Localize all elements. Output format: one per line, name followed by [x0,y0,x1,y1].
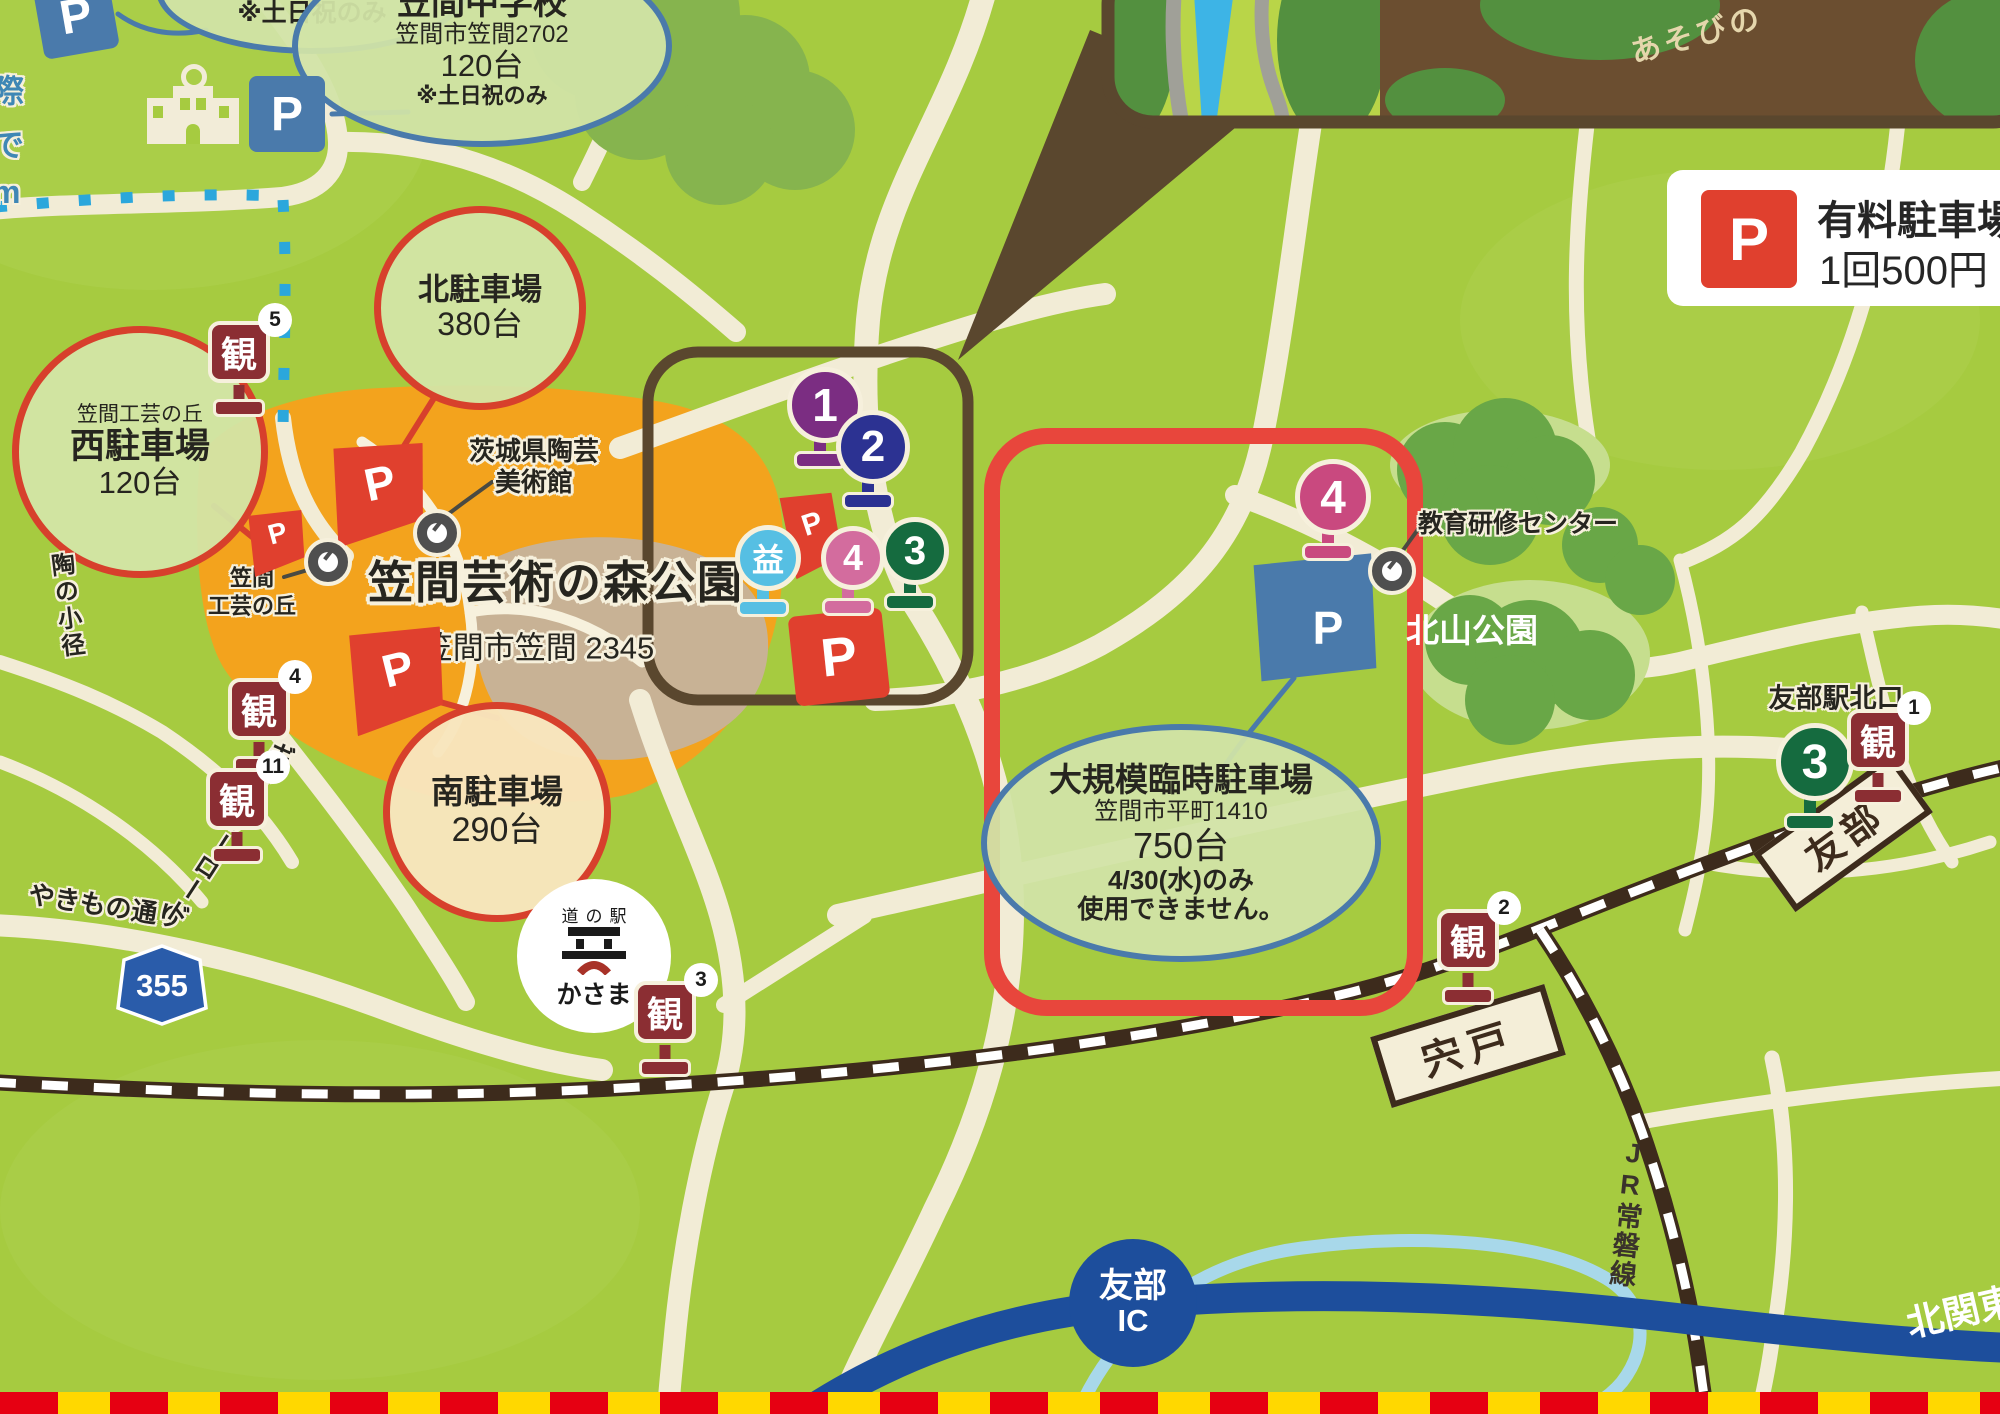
museum-line1: 茨城県陶芸 [469,436,599,467]
junior-high-name: 笠間中学校 [397,0,567,22]
kan-number: 2 [1487,891,1521,925]
michinoeki-name: かさま [556,975,631,1011]
craft-hill-line2: 工芸の丘 [208,592,296,620]
kan-char: 観 [647,986,683,1038]
museum-line2: 美術館 [469,467,599,498]
pin-4-temp: 4 [1295,459,1361,525]
pin-3: 3 [881,517,939,575]
south-lot-name: 南駐車場 [431,774,563,811]
kitayama-park-label: 北山公園 [1406,604,1538,652]
parking-icon-red: P [788,607,891,706]
kan-char: 観 [221,326,257,378]
temp-lot-note2: 使用できません。 [1077,895,1284,924]
pin-3-tomobe: 3 [1776,723,1844,791]
north-lot-name: 北駐車場 [418,273,542,308]
edge-char: で [0,120,24,166]
north-lot-callout: 北駐車場 380台 [374,206,586,410]
park-title: 笠間芸術の森公園 [368,546,744,611]
junior-high-address: 笠間市笠間2702 [395,22,568,49]
edge-char: m [0,174,24,211]
legend-box: P 有料駐車場 1回500円 [1667,170,2000,306]
north-lot-capacity: 380台 [437,307,522,343]
west-lot-name: 西駐車場 [70,427,210,466]
kan-number: 5 [258,303,292,337]
temp-lot-callout: 大規模臨時駐車場 笠間市平町1410 750台 4/30(水)のみ 使用できませ… [981,724,1381,962]
map-border-stripe [0,1392,2000,1414]
ic-suffix: IC [1118,1305,1149,1338]
legend-price: 1回500円 [1819,238,1988,296]
kan-char: 観 [241,683,277,735]
entrance-icon [1368,547,1416,595]
parking-area-blue-label: P [1313,601,1344,655]
kan-marker-11: 観 11 [206,768,268,830]
ic-name: 友部 [1099,1269,1167,1305]
parking-icon-blue: P [249,76,325,152]
pin-4-temp-label: 4 [1320,470,1346,524]
pin-mashiko-label: 益 [752,535,784,581]
pin-2-label: 2 [861,422,885,472]
kan-number: 3 [684,963,718,997]
pin-3-label: 3 [904,529,926,574]
kasama-parking-map: P ※土日祝のみ 笠間中学校 笠間市笠間2702 120台 ※土日祝のみ P 際… [0,0,2000,1414]
edge-text: 際 で m [0,66,24,211]
kan-number: 4 [278,660,312,694]
tomobe-ic-badge: 友部 IC [1069,1239,1197,1367]
south-lot-capacity: 290台 [452,811,543,849]
west-lot-area: 笠間工芸の丘 [77,403,203,427]
kan-marker-4: 観 4 [228,678,290,740]
kan-marker-3: 観 3 [634,981,696,1043]
school-icon [147,64,239,144]
museum-label: 茨城県陶芸 美術館 [469,436,599,498]
temp-lot-note1: 4/30(水)のみ [1108,866,1254,895]
park-address: 笠間市笠間 2345 [422,623,655,668]
junior-high-note: ※土日祝のみ [416,84,547,109]
craft-hill-line1: 笠間 [208,565,296,593]
temp-lot-address: 笠間市平町1410 [1094,799,1267,826]
temp-lot-capacity: 750台 [1133,826,1229,866]
route-355-number: 355 [136,968,188,1004]
temp-lot-name: 大規模臨時駐車場 [1049,762,1313,799]
kan-marker-2: 観 2 [1437,909,1499,971]
junior-high-capacity: 120台 [441,49,524,84]
kan-number: 11 [256,750,290,784]
kan-number: 1 [1897,691,1931,725]
kan-marker-1: 観 1 [1847,709,1909,771]
kan-char: 観 [1860,714,1896,766]
kan-marker-5: 観 5 [208,321,270,383]
pin-4-label: 4 [843,537,863,579]
craft-hill-label: 笠間 工芸の丘 [208,565,296,620]
kan-char: 観 [219,773,255,825]
entrance-icon [304,538,352,586]
pin-2: 2 [836,410,900,474]
pin-4: 4 [821,526,875,580]
legend-paid-parking-icon: P [1701,190,1797,288]
parking-area-blue: P [1247,552,1379,684]
pin-3-tomobe-label: 3 [1802,735,1829,790]
michinoeki-logo-icon [562,927,626,975]
west-lot-capacity: 120台 [99,466,182,501]
edge-char: 際 [0,66,24,112]
entrance-icon [413,509,461,557]
pin-1-label: 1 [812,378,838,432]
kan-char: 観 [1450,914,1486,966]
pin-mashiko: 益 [735,525,791,581]
michinoeki-prefix: 道の駅 [562,902,634,927]
training-center-label: 教育研修センター [1418,504,1618,540]
